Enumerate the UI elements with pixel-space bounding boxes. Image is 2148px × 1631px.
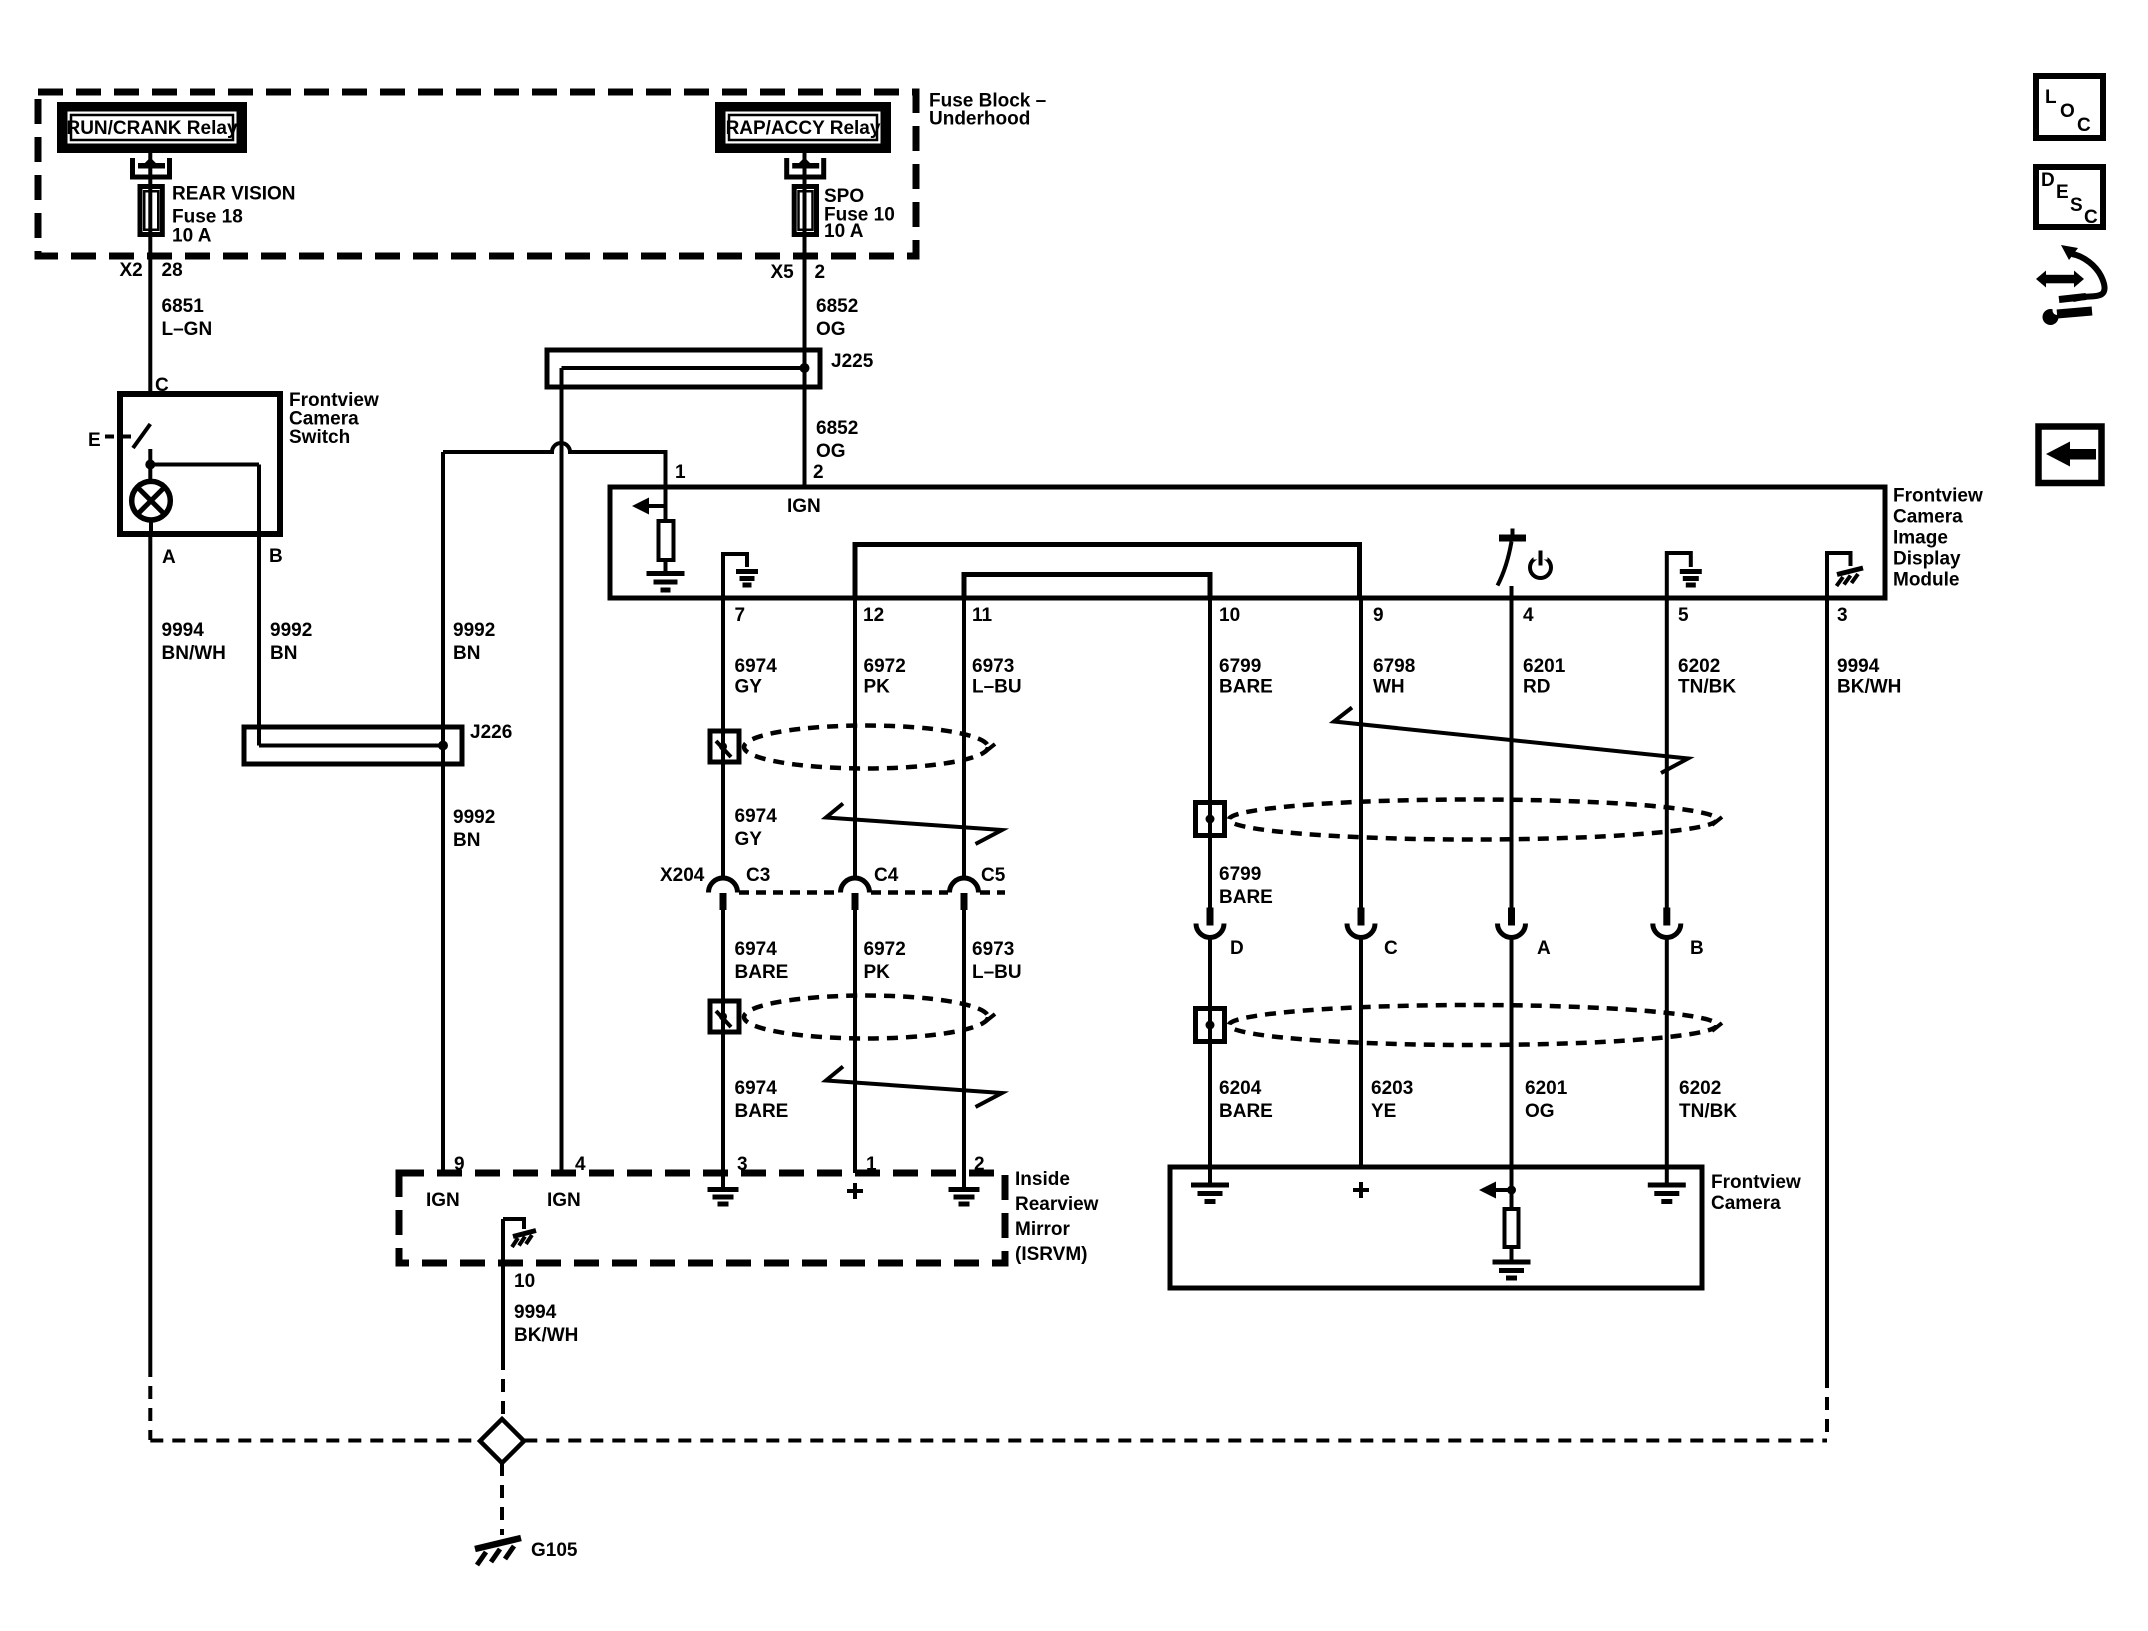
svg-text:6852: 6852 [816,418,858,439]
svg-text:10: 10 [1219,605,1240,626]
svg-text:1: 1 [866,1154,877,1175]
svg-text:6974: 6974 [735,1078,778,1099]
svg-text:OG: OG [1525,1101,1555,1122]
svg-text:BARE: BARE [735,962,789,983]
svg-text:1: 1 [675,462,686,483]
svg-text:G105: G105 [531,1540,578,1561]
svg-text:6852: 6852 [816,296,858,317]
svg-text:IGN: IGN [547,1190,581,1211]
svg-text:C5: C5 [981,865,1006,886]
svg-text:Fuse 18: Fuse 18 [172,207,243,228]
svg-text:C: C [2084,207,2098,228]
svg-text:9992: 9992 [453,807,495,828]
svg-text:6974: 6974 [735,656,778,677]
svg-text:J225: J225 [831,351,874,372]
svg-text:4: 4 [575,1154,586,1175]
svg-text:GY: GY [735,677,763,698]
svg-text:L–BU: L–BU [972,962,1022,983]
svg-text:BN: BN [270,643,297,664]
svg-text:BARE: BARE [735,1101,789,1122]
svg-text:6203: 6203 [1371,1078,1413,1099]
svg-text:C4: C4 [874,865,899,886]
svg-text:RUN/CRANK Relay: RUN/CRANK Relay [66,118,237,139]
svg-text:9994: 9994 [514,1302,557,1323]
svg-text:E: E [88,430,101,451]
svg-text:5: 5 [1678,605,1689,626]
svg-text:(ISRVM): (ISRVM) [1015,1244,1087,1265]
svg-text:IGN: IGN [426,1190,460,1211]
svg-text:A: A [1537,938,1551,959]
svg-text:L: L [2045,87,2057,108]
svg-text:6973: 6973 [972,656,1014,677]
svg-text:Underhood: Underhood [929,109,1030,130]
svg-text:28: 28 [162,260,183,281]
svg-text:9992: 9992 [270,620,312,641]
svg-text:RD: RD [1523,677,1550,698]
svg-text:B: B [1690,938,1704,959]
svg-text:OG: OG [816,441,846,462]
svg-text:6974: 6974 [735,939,778,960]
svg-text:BN: BN [453,643,480,664]
svg-text:Display: Display [1893,549,1961,570]
svg-text:BARE: BARE [1219,677,1273,698]
svg-text:6201: 6201 [1523,656,1566,677]
svg-text:10 A: 10 A [824,221,864,242]
svg-text:6972: 6972 [864,656,906,677]
svg-text:RAP/ACCY Relay: RAP/ACCY Relay [726,118,881,139]
svg-text:9992: 9992 [453,620,495,641]
svg-text:Frontview: Frontview [1711,1172,1801,1193]
svg-text:Inside: Inside [1015,1169,1070,1190]
svg-text:Module: Module [1893,570,1960,591]
svg-text:IGN: IGN [787,496,821,517]
svg-text:TN/BK: TN/BK [1679,1101,1737,1122]
svg-text:7: 7 [735,605,746,626]
svg-text:L–GN: L–GN [162,319,213,340]
svg-text:C: C [1384,938,1398,959]
svg-text:6851: 6851 [162,296,205,317]
svg-text:6204: 6204 [1219,1078,1262,1099]
svg-text:Image: Image [1893,528,1948,549]
svg-text:Camera: Camera [1893,507,1963,528]
svg-text:X2: X2 [120,260,143,281]
svg-text:L–BU: L–BU [972,677,1022,698]
svg-text:D: D [1230,938,1244,959]
svg-text:3: 3 [1837,605,1848,626]
svg-text:10: 10 [514,1271,535,1292]
svg-text:2: 2 [974,1154,985,1175]
svg-text:6799: 6799 [1219,864,1261,885]
svg-text:10 A: 10 A [172,226,212,247]
svg-text:C: C [2077,115,2091,136]
svg-text:A: A [162,547,176,568]
svg-text:Mirror: Mirror [1015,1219,1071,1240]
svg-text:YE: YE [1371,1101,1396,1122]
svg-text:Switch: Switch [289,427,350,448]
svg-text:OG: OG [816,319,846,340]
svg-text:BN: BN [453,830,480,851]
svg-text:6974: 6974 [735,806,778,827]
svg-text:Camera: Camera [1711,1193,1781,1214]
svg-text:Rearview: Rearview [1015,1194,1099,1215]
svg-text:BARE: BARE [1219,1101,1273,1122]
svg-text:9: 9 [1373,605,1384,626]
svg-text:GY: GY [735,829,763,850]
svg-text:6973: 6973 [972,939,1014,960]
svg-text:6202: 6202 [1678,656,1720,677]
svg-text:REAR VISION: REAR VISION [172,184,296,205]
svg-text:3: 3 [737,1154,748,1175]
svg-text:6201: 6201 [1525,1078,1568,1099]
svg-text:9: 9 [454,1154,465,1175]
svg-text:11: 11 [972,605,993,626]
svg-text:C3: C3 [746,865,770,886]
svg-text:4: 4 [1523,605,1534,626]
svg-text:6972: 6972 [864,939,906,960]
svg-text:6202: 6202 [1679,1078,1721,1099]
svg-text:12: 12 [863,605,884,626]
svg-text:WH: WH [1373,677,1405,698]
svg-text:BK/WH: BK/WH [514,1325,578,1346]
svg-text:PK: PK [864,962,891,983]
svg-text:9994: 9994 [162,620,205,641]
svg-text:9994: 9994 [1837,656,1880,677]
svg-text:X5: X5 [771,262,795,283]
svg-text:X204: X204 [660,865,705,886]
svg-text:S: S [2070,195,2083,216]
svg-text:BARE: BARE [1219,887,1273,908]
svg-text:BK/WH: BK/WH [1837,677,1901,698]
svg-text:PK: PK [864,677,891,698]
svg-text:BN/WH: BN/WH [162,643,226,664]
svg-text:D: D [2041,170,2055,191]
svg-text:Frontview: Frontview [1893,486,1983,507]
svg-text:J226: J226 [470,722,512,743]
svg-text:TN/BK: TN/BK [1678,677,1736,698]
svg-text:2: 2 [815,262,826,283]
svg-text:6798: 6798 [1373,656,1415,677]
svg-text:C: C [155,375,169,396]
svg-text:2: 2 [813,462,824,483]
svg-text:6799: 6799 [1219,656,1261,677]
svg-text:O: O [2060,101,2075,122]
svg-text:E: E [2056,182,2069,203]
svg-text:B: B [269,546,283,567]
